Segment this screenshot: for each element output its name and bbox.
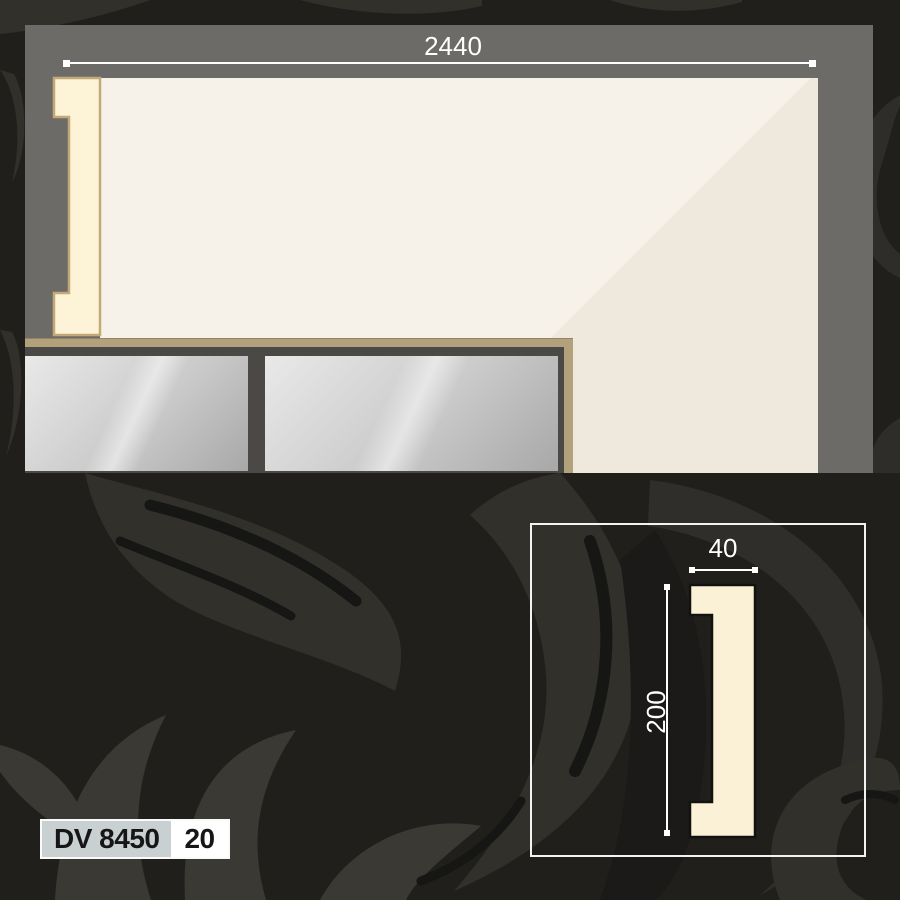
product-code: DV 8450 <box>42 821 171 857</box>
metal-panel-right <box>265 356 558 471</box>
cross-section-height-label: 200 <box>643 674 669 750</box>
dimension-endpoint-marker <box>664 830 670 836</box>
product-label: DV 8450 20 <box>40 819 230 859</box>
dimension-endpoint-marker <box>752 567 758 573</box>
counter-edge-right <box>564 347 573 473</box>
cross-section-diagram: 40 200 <box>530 523 866 857</box>
width-dimension-label: 2440 <box>403 33 503 59</box>
molding-profile-side-view <box>52 76 102 338</box>
counter-edge-top <box>25 338 573 347</box>
dimension-endpoint-marker <box>809 60 816 67</box>
dimension-endpoint-marker <box>63 60 70 67</box>
page: 2440 40 200 DV 84 <box>0 0 900 900</box>
dimension-endpoint-marker <box>689 567 695 573</box>
metal-panel-left <box>25 356 248 471</box>
dimension-endpoint-marker <box>664 584 670 590</box>
cross-section-width-line <box>692 569 755 571</box>
product-variant-badge: 20 <box>171 821 227 857</box>
cross-section-profile-shape <box>687 582 759 842</box>
width-dimension-line <box>66 62 813 64</box>
cross-section-width-label: 40 <box>688 535 758 561</box>
room-scene: 2440 <box>25 25 873 473</box>
